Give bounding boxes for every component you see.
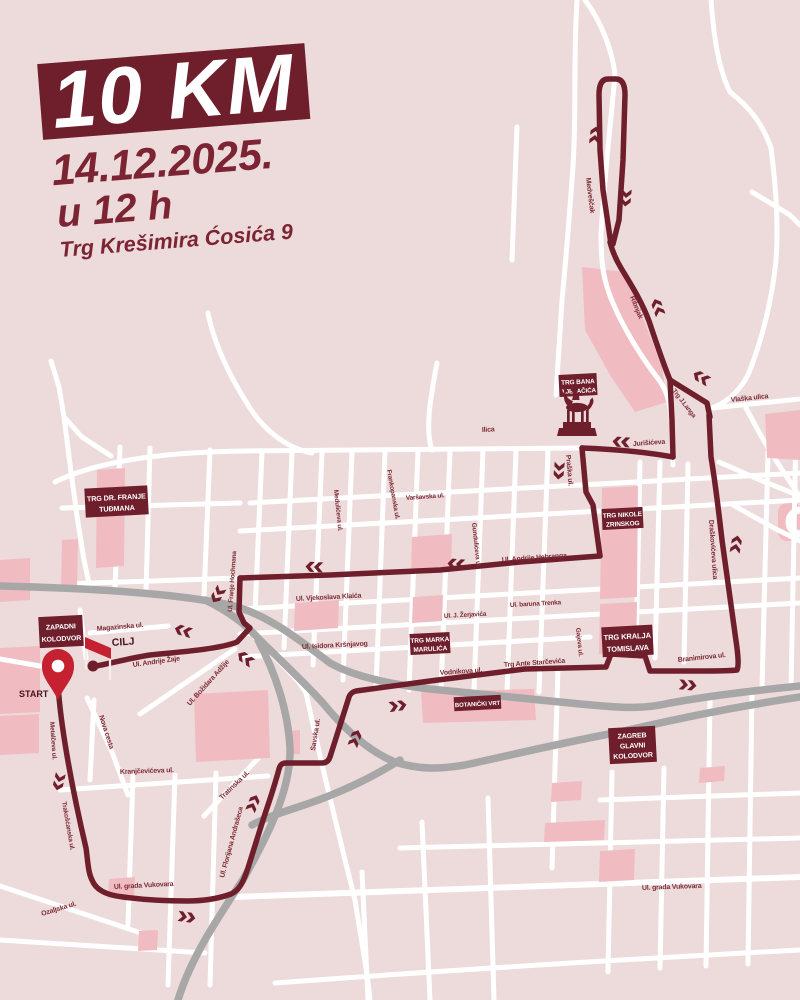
svg-text:START: START [19, 689, 49, 699]
svg-text:Ilica: Ilica [482, 426, 495, 434]
svg-text:GLAVNI: GLAVNI [620, 742, 646, 750]
svg-text:CILJ: CILJ [111, 635, 135, 649]
svg-text:TUĐMANA: TUĐMANA [99, 503, 135, 514]
svg-text:u 12 h: u 12 h [55, 183, 174, 236]
